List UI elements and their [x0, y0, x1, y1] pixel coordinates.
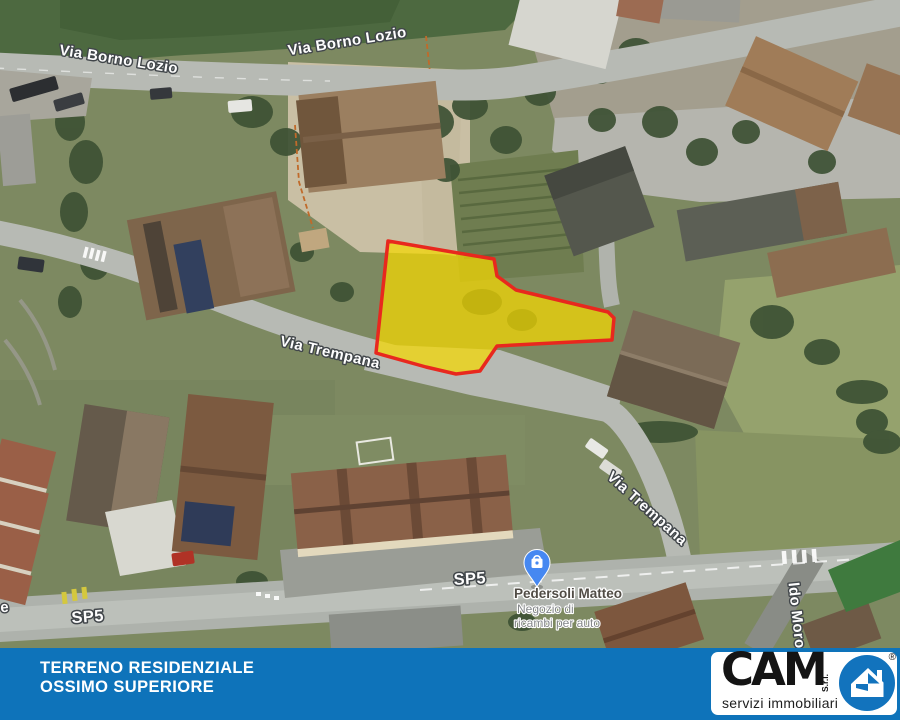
building	[172, 394, 274, 560]
poi-description: Negozio di	[517, 602, 574, 616]
listing-image: Via Borno Lozio Via Borno Lozio Via Trem…	[0, 0, 900, 720]
listing-title-line2: OSSIMO SUPERIORE	[40, 678, 254, 697]
listing-title: TERRENO RESIDENZIALE OSSIMO SUPERIORE	[40, 659, 254, 697]
listing-banner: TERRENO RESIDENZIALE OSSIMO SUPERIORE CA…	[0, 648, 900, 720]
street-label: SP5	[453, 569, 486, 589]
listing-title-line1: TERRENO RESIDENZIALE	[40, 659, 254, 678]
agency-logo: CAM S.r.l. ® servizi immobiliari	[711, 652, 897, 715]
solar-panels	[181, 501, 235, 546]
street-label-partial: e	[0, 599, 10, 617]
agency-logo-suffix: S.r.l.	[820, 674, 830, 692]
building	[295, 81, 445, 193]
registered-trademark-icon: ®	[889, 652, 896, 663]
agency-logo-brand: CAM	[721, 643, 825, 696]
poi-name[interactable]: Pedersoli Matteo	[514, 586, 622, 601]
street-label: SP5	[71, 607, 105, 627]
agency-logo-tagline: servizi immobiliari	[722, 695, 838, 711]
house-icon	[839, 655, 895, 711]
satellite-map[interactable]: Via Borno Lozio Via Borno Lozio Via Trem…	[0, 0, 900, 648]
poi-description: ricambi per auto	[514, 616, 600, 630]
